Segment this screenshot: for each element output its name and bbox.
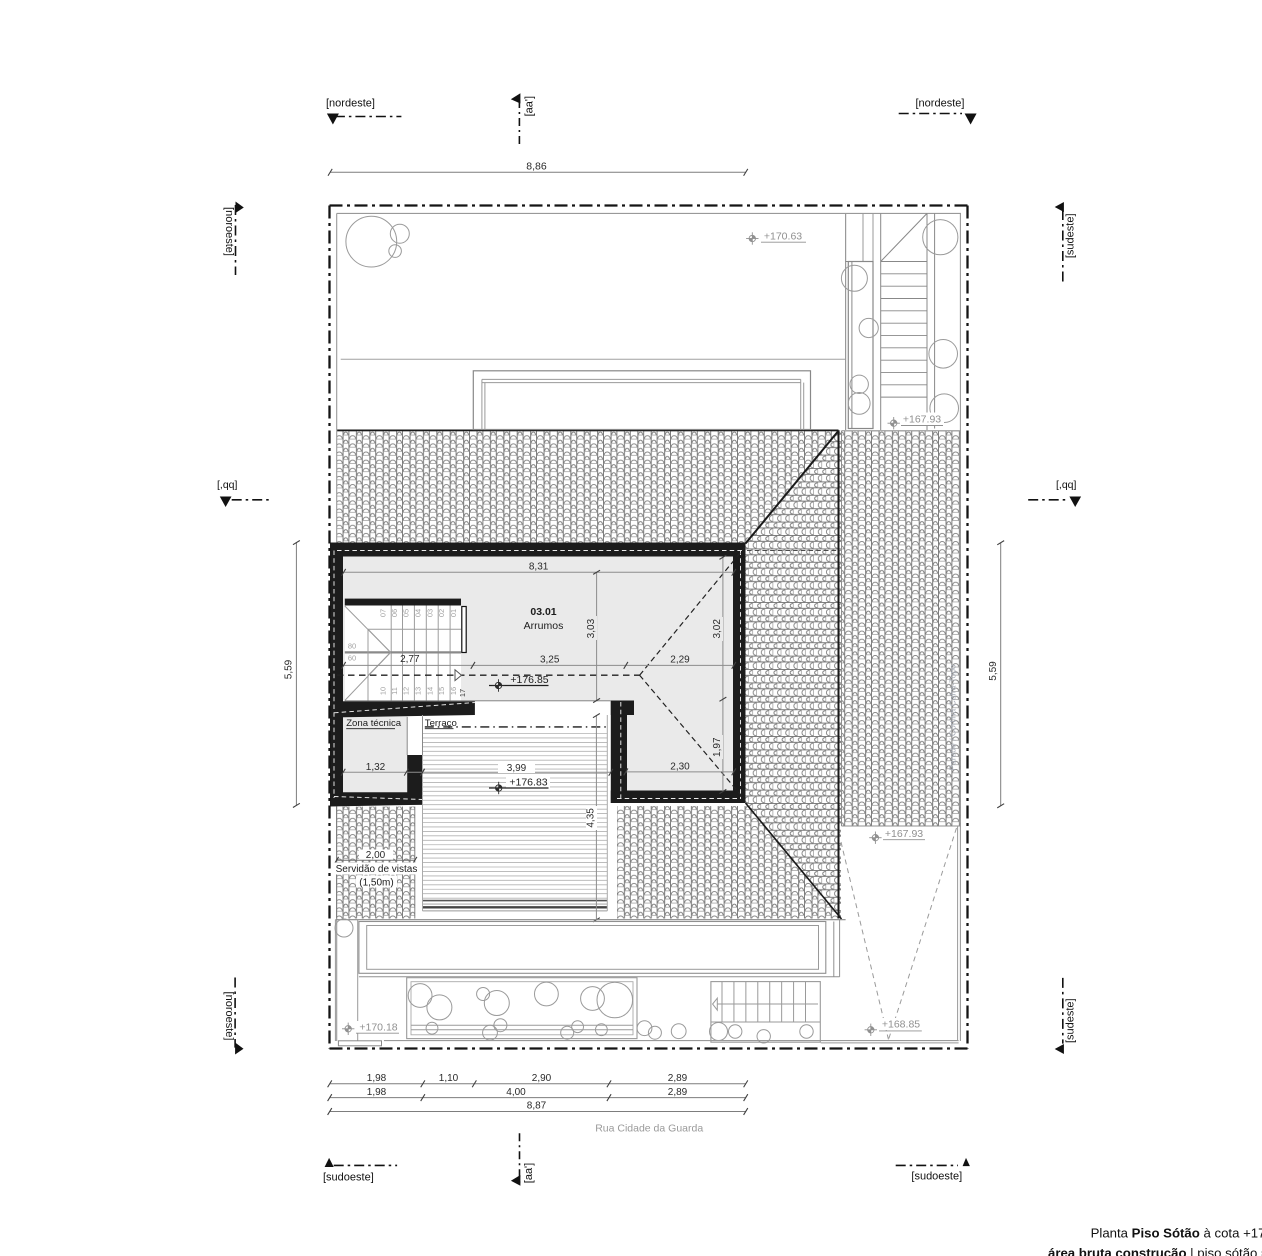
svg-text:+170.63: +170.63 [764,230,802,242]
svg-text:8,87: 8,87 [527,1101,547,1112]
svg-text:[,qq]: [,qq] [1056,479,1077,491]
svg-text:1,10: 1,10 [439,1073,459,1084]
svg-text:[noroeste]: [noroeste] [223,207,235,256]
svg-text:2,89: 2,89 [668,1087,688,1098]
svg-text:3,25: 3,25 [540,655,560,666]
svg-text:[sudoeste]: [sudoeste] [323,1172,374,1184]
svg-text:4,00: 4,00 [506,1087,526,1098]
svg-text:2,77: 2,77 [400,654,420,665]
svg-text:2,00: 2,00 [366,850,386,861]
svg-text:05: 05 [402,609,411,617]
svg-text:[aa']: [aa'] [524,96,536,116]
svg-text:5,59: 5,59 [284,659,295,679]
svg-text:2,30: 2,30 [670,762,690,773]
svg-text:2,90: 2,90 [532,1073,552,1084]
svg-text:3,02: 3,02 [712,619,723,639]
svg-text:11: 11 [390,687,399,695]
svg-text:+167.93: +167.93 [885,828,923,840]
svg-text:[sudeste]: [sudeste] [1065,998,1077,1043]
svg-text:Planta Piso Sótão à cota +178.: Planta Piso Sótão à cota +178.60 [1091,1226,1262,1241]
svg-text:Zona técnica: Zona técnica [346,718,402,729]
svg-text:[nordeste]: [nordeste] [916,98,965,110]
svg-text:8,31: 8,31 [529,561,549,572]
svg-text:+176.85: +176.85 [510,674,548,686]
svg-text:[sudeste]: [sudeste] [1065,213,1077,258]
svg-text:Parede / Cortina Cofra-Topo: Parede / Cortina Cofra-Topo [948,664,958,771]
svg-text:04: 04 [413,609,422,617]
svg-text:1,97: 1,97 [712,737,723,757]
svg-text:1,98: 1,98 [367,1073,387,1084]
svg-text:01: 01 [449,609,458,617]
svg-text:Terraço: Terraço [425,718,457,729]
svg-text:[nordeste]: [nordeste] [326,98,375,110]
svg-text:[sudoeste]: [sudoeste] [911,1171,962,1183]
svg-text:2,29: 2,29 [670,655,690,666]
svg-text:Rua Cidade da Guarda: Rua Cidade da Guarda [595,1122,703,1134]
svg-text:06: 06 [390,609,399,617]
svg-text:12: 12 [402,687,411,695]
svg-text:[noroeste]: [noroeste] [223,992,235,1041]
svg-text:2,89: 2,89 [668,1073,688,1084]
svg-text:+167.93: +167.93 [903,414,941,426]
svg-text:Arrumos: Arrumos [524,620,564,632]
svg-text:02: 02 [437,609,446,617]
svg-text:4,35: 4,35 [586,808,597,828]
svg-text:14: 14 [425,687,434,695]
svg-text:8,86: 8,86 [526,161,547,173]
svg-text:10: 10 [379,687,388,695]
svg-text:Servidão de vistas: Servidão de vistas [336,864,418,875]
svg-text:07: 07 [379,609,388,617]
svg-text:[aa']: [aa'] [523,1163,535,1183]
svg-text:(1,50m): (1,50m) [359,877,393,888]
svg-text:+168.85: +168.85 [882,1019,920,1031]
svg-text:+170.18: +170.18 [359,1022,397,1034]
svg-text:60: 60 [348,654,356,663]
svg-text:13: 13 [413,687,422,695]
svg-text:3,03: 3,03 [586,618,597,638]
svg-text:1,98: 1,98 [367,1087,387,1098]
svg-text:17: 17 [458,689,467,697]
svg-text:1,32: 1,32 [366,762,386,773]
svg-text:área bruta construção | piso s: área bruta construção | piso sótão = 031 [1048,1246,1262,1256]
svg-text:[,qq]: [,qq] [217,479,238,491]
svg-text:03.01: 03.01 [530,606,556,618]
svg-text:3,99: 3,99 [507,763,527,774]
svg-text:16: 16 [449,687,458,695]
svg-text:5,59: 5,59 [988,661,999,681]
svg-text:80: 80 [348,642,356,651]
svg-text:15: 15 [437,687,446,695]
svg-text:+176.83: +176.83 [509,777,547,789]
svg-text:03: 03 [425,609,434,617]
